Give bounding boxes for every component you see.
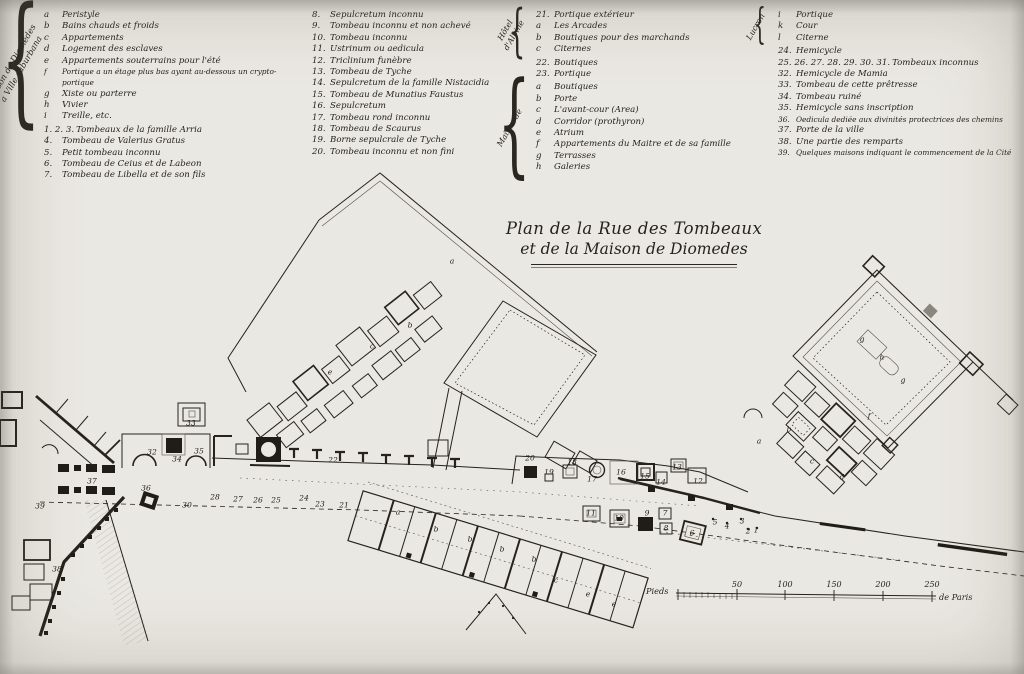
engraved-plan-page: .w{fill:none;stroke:#26231d;stroke-width…: [0, 0, 1024, 674]
plan-drawing: .w{fill:none;stroke:#26231d;stroke-width…: [0, 0, 1024, 674]
city-edge-houses: [0, 392, 52, 610]
scalebar-tick-250: 250: [924, 580, 939, 589]
city-gate: [58, 464, 115, 495]
scalebar-tick-150: 150: [826, 580, 841, 589]
upper-villa-complex: [228, 173, 597, 473]
title-line-2: et de la Maison de Diomedes: [505, 240, 763, 258]
maison-de-diomedes: [620, 256, 1018, 513]
south-tomb-row: [583, 506, 758, 545]
albine-boutiques: [348, 481, 651, 634]
street-portico-piers: [214, 436, 460, 468]
scalebar-unit-right: de Paris: [939, 592, 972, 602]
scale-bar: [676, 589, 936, 602]
scalebar-tick-50: 50: [732, 580, 742, 589]
ramparts: [40, 497, 150, 645]
map-title: Plan de la Rue des Tombeaux et de la Mai…: [505, 219, 763, 268]
scalebar-unit-left: Pieds: [646, 586, 668, 596]
title-rule: [531, 264, 737, 268]
north-tomb-row: [512, 456, 748, 492]
scalebar-tick-200: 200: [875, 580, 890, 589]
scalebar-tick-100: 100: [777, 580, 792, 589]
title-line-1: Plan de la Rue des Tombeaux: [505, 219, 763, 238]
west-monument-terrace: [122, 403, 210, 510]
northwest-wall-structure: [36, 396, 120, 468]
